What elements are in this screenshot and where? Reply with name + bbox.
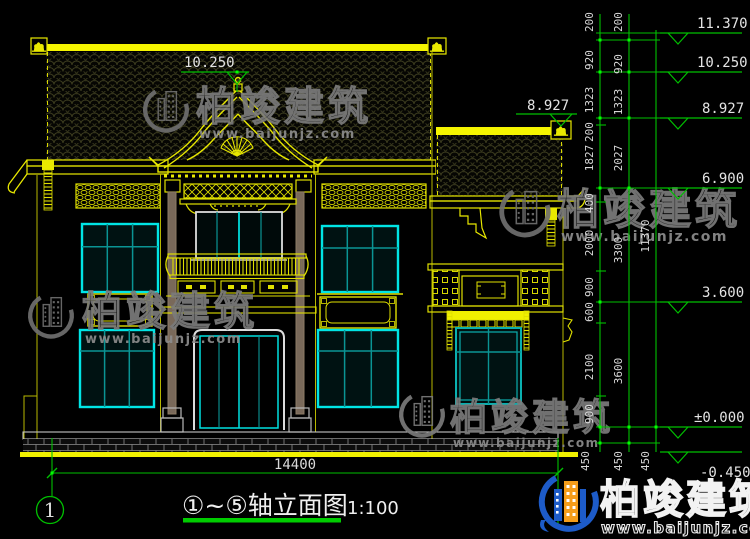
frieze-lattice-center	[184, 184, 292, 198]
dim-label: 11370	[639, 219, 652, 252]
column-right	[296, 192, 304, 414]
gable-level-text: 10.250	[184, 55, 235, 71]
dim-label: 920	[612, 54, 625, 74]
dim-label: 450	[639, 451, 652, 471]
wing-level-text: 8.927	[527, 98, 569, 114]
dim-label: 400	[583, 193, 596, 213]
dim-label: 920	[583, 50, 596, 70]
downspout-head-left	[42, 160, 54, 170]
dim-label: 3300	[612, 237, 625, 264]
wing-roof-tiles	[436, 135, 563, 196]
level-text: 3.600	[702, 285, 744, 301]
title-text: ①~⑤轴立面图	[182, 491, 348, 520]
title-underline	[183, 518, 341, 523]
downspout-wing	[547, 220, 555, 246]
watermark-url: www.baijunjz.com	[453, 436, 600, 450]
dim-label: 2100	[583, 354, 596, 381]
window-upper-right	[317, 226, 403, 294]
total-width-text: 14400	[274, 457, 316, 473]
window-wing	[456, 328, 521, 404]
dim-label: 450	[612, 451, 625, 471]
brand-url: www.baijunjz.com	[601, 519, 750, 537]
scale-text: 1:100	[347, 498, 399, 519]
balcony-railing	[166, 254, 308, 279]
frieze-honeycomb-left	[76, 184, 160, 208]
dim-label: 900	[583, 277, 596, 297]
level-text: 8.927	[702, 101, 744, 117]
dim-label: 2027	[612, 145, 625, 172]
watermark-url: www.baijunjz.com	[199, 127, 356, 142]
level-text: 10.250	[697, 55, 748, 71]
dim-label: 200	[612, 12, 625, 32]
wing-ridge	[436, 127, 553, 135]
dim-label: 200	[583, 122, 596, 142]
elevation-canvas: 柏竣建筑 www.baijunjz.com 柏竣建筑 www.baijunjz.…	[0, 0, 750, 539]
frieze-honeycomb-right	[322, 184, 426, 208]
watermark-brand: 柏竣建筑	[82, 289, 258, 335]
downspout-left	[44, 170, 52, 210]
dim-label: 1323	[612, 89, 625, 116]
window-upper-left	[82, 224, 158, 292]
brand-footer: 柏竣建筑 www.baijunjz.com	[540, 477, 750, 537]
brand-name: 柏竣建筑	[600, 477, 750, 523]
level-text: 11.370	[697, 16, 748, 32]
dim-label: 2000	[583, 230, 596, 257]
dim-label: 900	[583, 404, 596, 424]
dim-label: 600	[583, 302, 596, 322]
axis-number: 1	[44, 498, 57, 522]
level-text: ±0.000	[694, 410, 745, 426]
dim-label: 200	[583, 12, 596, 32]
watermark-brand: 柏竣建筑	[196, 84, 372, 130]
cad-viewport: 柏竣建筑 www.baijunjz.com 柏竣建筑 www.baijunjz.…	[0, 0, 750, 539]
dim-label: 450	[579, 451, 592, 471]
level-text: 6.900	[702, 171, 744, 187]
dim-label: 1323	[583, 87, 596, 114]
watermark-url: www.baijunjz.com	[85, 332, 242, 347]
dim-label: 1827	[583, 145, 596, 172]
dim-label: 3600	[612, 358, 625, 385]
window-tower	[191, 212, 287, 260]
main-ridge	[46, 44, 430, 51]
window-lower-right	[318, 330, 398, 407]
